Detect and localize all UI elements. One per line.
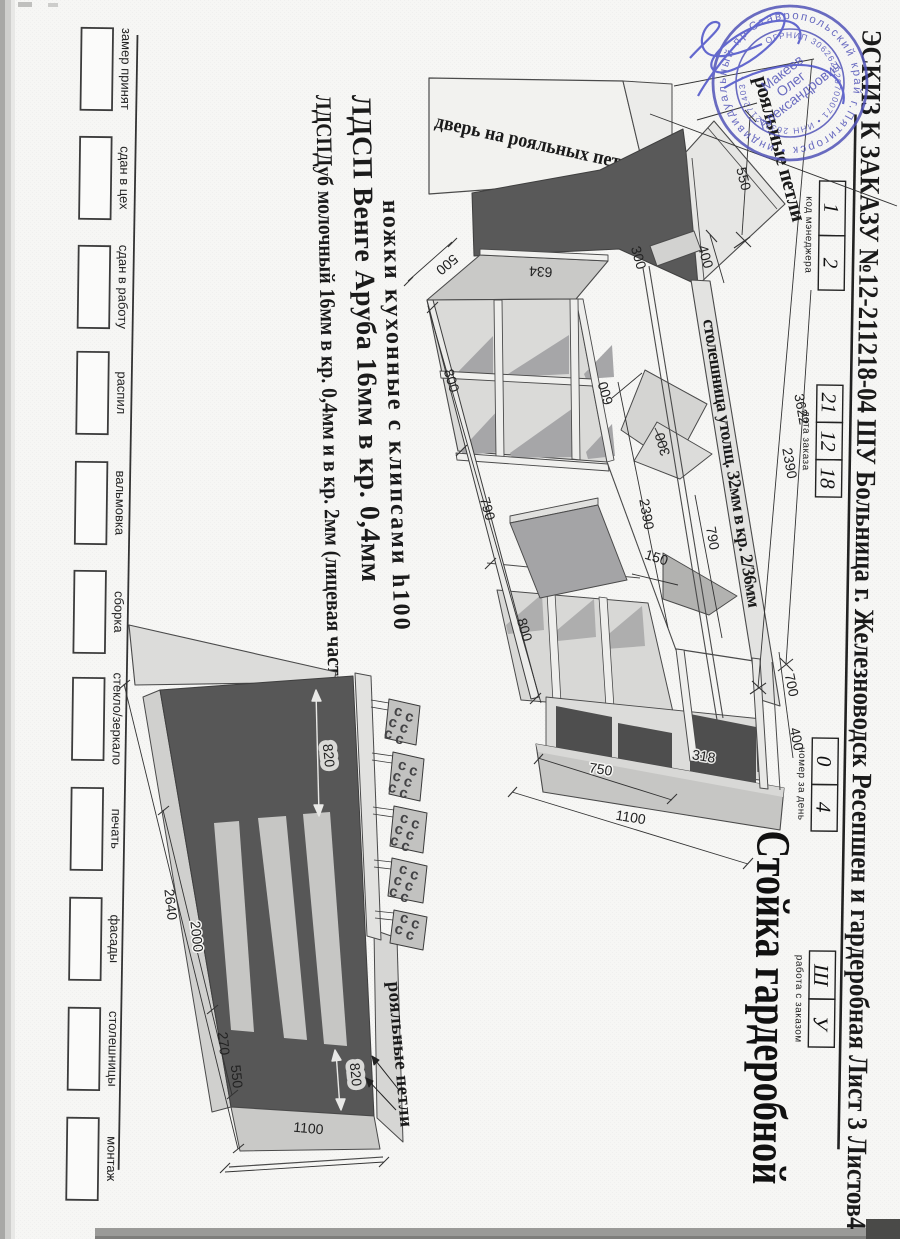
- svg-text:1100: 1100: [293, 1119, 325, 1138]
- svg-text:печать: печать: [108, 809, 124, 850]
- svg-text:стекло/зеркало: стекло/зеркало: [109, 673, 125, 766]
- svg-text:столешницы: столешницы: [105, 1011, 121, 1087]
- svg-text:вальмовка: вальмовка: [112, 470, 128, 536]
- svg-text:замер принят: замер принят: [118, 28, 134, 110]
- svg-text:634: 634: [528, 263, 552, 280]
- svg-text:820: 820: [320, 743, 338, 768]
- svg-text:12: 12: [816, 430, 840, 452]
- svg-text:4: 4: [811, 802, 835, 813]
- svg-text:550: 550: [228, 1064, 246, 1089]
- svg-text:распил: распил: [114, 371, 130, 414]
- svg-text:Ш: Ш: [809, 963, 833, 987]
- svg-text:Стойка гардеробной: Стойка гардеробной: [742, 830, 800, 1185]
- svg-text:сдан в работу: сдан в работу: [115, 245, 131, 330]
- svg-text:820: 820: [347, 1062, 365, 1087]
- svg-text:монтаж: монтаж: [104, 1136, 120, 1182]
- svg-text:0: 0: [812, 756, 836, 767]
- svg-text:270: 270: [215, 1031, 233, 1056]
- svg-text:сборка: сборка: [111, 591, 127, 634]
- svg-text:фасады: фасады: [107, 914, 123, 963]
- svg-text:1: 1: [819, 203, 843, 214]
- svg-text:2000: 2000: [187, 920, 206, 953]
- svg-text:2640: 2640: [161, 888, 180, 921]
- svg-text:18: 18: [816, 467, 840, 489]
- svg-text:21: 21: [817, 392, 841, 413]
- svg-text:номер за день: номер за день: [795, 747, 807, 821]
- svg-text:2: 2: [818, 258, 842, 269]
- svg-text:сдан в цех: сдан в цех: [117, 146, 133, 210]
